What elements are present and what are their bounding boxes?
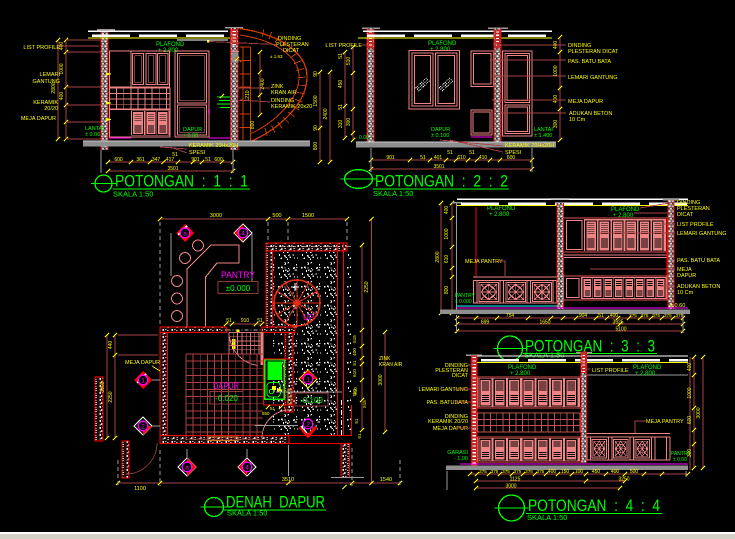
svg-text:400: 400 bbox=[59, 92, 65, 101]
svg-text:PAS. BATU BATA: PAS. BATU BATA bbox=[677, 258, 720, 264]
svg-text:2400: 2400 bbox=[260, 78, 266, 89]
svg-text:LIST PROFILE: LIST PROFILE bbox=[677, 222, 714, 228]
svg-text:375: 375 bbox=[629, 313, 637, 318]
svg-text:800: 800 bbox=[313, 142, 319, 151]
svg-text:51: 51 bbox=[205, 157, 211, 163]
svg-text:PANTRY: PANTRY bbox=[221, 270, 256, 281]
svg-text:375: 375 bbox=[664, 313, 672, 318]
svg-text:2250: 2250 bbox=[108, 391, 114, 402]
svg-text:MEJA DAPUR: MEJA DAPUR bbox=[568, 99, 603, 105]
svg-text:3000: 3000 bbox=[505, 484, 516, 490]
svg-text:PAS. BATUBATA: PAS. BATUBATA bbox=[427, 400, 469, 406]
svg-text:1000: 1000 bbox=[553, 65, 559, 76]
svg-text:KERAMIK 20Hx20H: KERAMIK 20Hx20H bbox=[189, 143, 238, 149]
svg-text:2: 2 bbox=[141, 424, 145, 431]
svg-text:2250: 2250 bbox=[364, 281, 370, 292]
svg-text:361: 361 bbox=[136, 157, 145, 163]
svg-text:375: 375 bbox=[537, 469, 545, 474]
svg-text:450: 450 bbox=[592, 469, 601, 475]
svg-text:± 0.00: ± 0.00 bbox=[183, 133, 198, 139]
svg-text:±0.000: ±0.000 bbox=[226, 284, 251, 293]
svg-text:POTONGAN : 1 : 1: POTONGAN : 1 : 1 bbox=[115, 173, 248, 191]
svg-text:510: 510 bbox=[346, 57, 352, 66]
svg-text:KRAN AIR: KRAN AIR bbox=[271, 90, 297, 96]
svg-text:375: 375 bbox=[514, 469, 522, 474]
svg-text:5100: 5100 bbox=[615, 327, 626, 333]
svg-text:3510: 3510 bbox=[282, 477, 294, 483]
svg-text:± 0.100: ± 0.100 bbox=[431, 133, 449, 139]
svg-text:3925: 3925 bbox=[612, 320, 623, 326]
svg-text:a: a bbox=[185, 465, 189, 472]
svg-text:MEJA DAPUR: MEJA DAPUR bbox=[433, 426, 468, 432]
svg-text:DAPUR: DAPUR bbox=[677, 273, 696, 279]
svg-text:3000: 3000 bbox=[100, 381, 106, 392]
svg-text:515: 515 bbox=[352, 335, 357, 343]
svg-text:51: 51 bbox=[338, 104, 344, 110]
svg-text:LEMARI GANTUNG: LEMARI GANTUNG bbox=[568, 75, 618, 81]
svg-text:150: 150 bbox=[561, 469, 570, 475]
svg-text:400: 400 bbox=[687, 363, 693, 372]
svg-text:POTONGAN : 2 : 2: POTONGAN : 2 : 2 bbox=[375, 173, 508, 191]
svg-text:600: 600 bbox=[507, 155, 516, 161]
svg-text:3250: 3250 bbox=[618, 477, 629, 483]
svg-text:2400: 2400 bbox=[323, 108, 329, 119]
svg-text:699: 699 bbox=[481, 320, 490, 326]
svg-text:51: 51 bbox=[598, 313, 604, 319]
svg-text:SKALA 1:50: SKALA 1:50 bbox=[373, 189, 413, 198]
svg-text:LEMARI: LEMARI bbox=[40, 72, 61, 78]
svg-text:SKALA 1:50: SKALA 1:50 bbox=[527, 513, 567, 522]
svg-text:1650: 1650 bbox=[539, 320, 550, 326]
svg-text:400: 400 bbox=[610, 313, 619, 319]
svg-text:51: 51 bbox=[270, 406, 276, 411]
svg-text:600: 600 bbox=[214, 157, 223, 163]
svg-text:2800: 2800 bbox=[435, 251, 441, 262]
svg-text:51: 51 bbox=[447, 150, 453, 156]
svg-text:51: 51 bbox=[172, 152, 178, 158]
svg-text:800: 800 bbox=[250, 121, 256, 130]
svg-text:90: 90 bbox=[313, 125, 319, 131]
svg-text:DAPUR: DAPUR bbox=[213, 381, 239, 391]
svg-text:3501: 3501 bbox=[433, 164, 444, 170]
svg-text:3000: 3000 bbox=[210, 213, 222, 219]
svg-text:904: 904 bbox=[579, 313, 588, 319]
svg-text:300: 300 bbox=[346, 118, 352, 127]
svg-text:3000: 3000 bbox=[696, 407, 702, 418]
svg-text:450: 450 bbox=[338, 80, 344, 89]
svg-text:LIST PROFILE: LIST PROFILE bbox=[592, 368, 629, 374]
svg-text:LIST PROFILE: LIST PROFILE bbox=[325, 43, 362, 49]
svg-text:600: 600 bbox=[687, 416, 693, 425]
svg-text:401: 401 bbox=[434, 155, 443, 161]
svg-text:3501: 3501 bbox=[167, 166, 178, 172]
svg-text:2: 2 bbox=[306, 422, 310, 429]
svg-text:400: 400 bbox=[553, 95, 559, 104]
svg-text:1500: 1500 bbox=[302, 213, 314, 219]
svg-text:754: 754 bbox=[506, 313, 515, 319]
svg-text:375: 375 bbox=[652, 313, 660, 318]
svg-text:375: 375 bbox=[676, 313, 684, 318]
svg-text:51: 51 bbox=[357, 433, 362, 439]
svg-text:901: 901 bbox=[386, 155, 395, 161]
svg-text:1: 1 bbox=[306, 377, 310, 384]
svg-text:51: 51 bbox=[338, 53, 344, 59]
svg-text:PLESTERAN DICAT: PLESTERAN DICAT bbox=[568, 49, 619, 55]
svg-text:UP: UP bbox=[303, 313, 314, 322]
svg-text:LEMARI GANTUNG: LEMARI GANTUNG bbox=[418, 387, 468, 393]
svg-text:800: 800 bbox=[444, 286, 450, 295]
svg-text:1125: 1125 bbox=[510, 477, 521, 483]
svg-text:KERAMIK 20/20: KERAMIK 20/20 bbox=[428, 419, 468, 425]
svg-text:LEMARI GANTUNG: LEMARI GANTUNG bbox=[677, 231, 727, 237]
svg-text:- 0.00: - 0.00 bbox=[356, 135, 369, 141]
svg-text:610: 610 bbox=[457, 155, 466, 161]
svg-text:610: 610 bbox=[444, 255, 450, 264]
svg-text:+ 2.800: + 2.800 bbox=[635, 371, 656, 377]
svg-text:51: 51 bbox=[257, 318, 263, 324]
svg-text:SKALA 1:50: SKALA 1:50 bbox=[113, 190, 153, 199]
svg-text:500: 500 bbox=[272, 213, 281, 219]
svg-text:3000: 3000 bbox=[378, 374, 384, 385]
svg-text:100: 100 bbox=[575, 469, 584, 475]
svg-text:300: 300 bbox=[687, 449, 693, 458]
svg-text:± 0.00: ± 0.00 bbox=[673, 457, 687, 463]
svg-text:± 1.400: ± 1.400 bbox=[534, 133, 552, 139]
svg-text:400: 400 bbox=[548, 469, 557, 475]
svg-text:51: 51 bbox=[352, 360, 357, 366]
svg-text:1210: 1210 bbox=[245, 90, 251, 101]
svg-text:375: 375 bbox=[502, 469, 510, 474]
svg-text:310: 310 bbox=[338, 120, 344, 129]
svg-text:SKALA 1:50: SKALA 1:50 bbox=[524, 351, 564, 360]
svg-text:410: 410 bbox=[479, 155, 488, 161]
svg-text:20/20: 20/20 bbox=[44, 106, 58, 112]
svg-text:+ 2.800: + 2.800 bbox=[510, 371, 531, 377]
svg-text:375: 375 bbox=[525, 469, 533, 474]
svg-text:10 Cm: 10 Cm bbox=[569, 117, 586, 123]
svg-text:610: 610 bbox=[353, 387, 358, 395]
svg-text:515: 515 bbox=[362, 400, 367, 408]
svg-text:DICAT: DICAT bbox=[283, 48, 300, 54]
svg-text:300: 300 bbox=[553, 120, 559, 129]
svg-text:MEJA PANTRY: MEJA PANTRY bbox=[465, 259, 503, 265]
svg-text:DICAT: DICAT bbox=[452, 373, 469, 379]
svg-text:PAS. BATU BATA: PAS. BATU BATA bbox=[568, 59, 611, 65]
svg-text:KRAN AIR: KRAN AIR bbox=[379, 362, 403, 368]
svg-text:GANTUNG: GANTUNG bbox=[33, 79, 61, 85]
svg-text:901: 901 bbox=[191, 157, 200, 163]
svg-text:a: a bbox=[183, 231, 187, 238]
svg-text:± 1.63: ± 1.63 bbox=[270, 54, 283, 59]
svg-text:51: 51 bbox=[469, 150, 475, 156]
svg-text:51: 51 bbox=[420, 155, 426, 161]
svg-text:375: 375 bbox=[479, 469, 487, 474]
svg-text:650: 650 bbox=[262, 411, 270, 416]
svg-text:1000: 1000 bbox=[444, 228, 450, 239]
svg-text:4: 4 bbox=[241, 231, 245, 238]
svg-text:910: 910 bbox=[241, 318, 250, 324]
svg-text:1000: 1000 bbox=[687, 387, 693, 398]
svg-text:51: 51 bbox=[354, 418, 359, 424]
svg-text:10 Cm: 10 Cm bbox=[677, 290, 694, 296]
svg-text:-0.020: -0.020 bbox=[215, 394, 238, 403]
svg-text:LIST PROFILE: LIST PROFILE bbox=[23, 45, 60, 51]
svg-text:600: 600 bbox=[114, 157, 123, 163]
svg-text:SPESI: SPESI bbox=[189, 150, 206, 156]
svg-text:400: 400 bbox=[444, 206, 450, 215]
svg-text:KERAMIK 20x20: KERAMIK 20x20 bbox=[271, 104, 312, 110]
svg-text:347: 347 bbox=[152, 157, 161, 163]
svg-text:MEJA PANTRY: MEJA PANTRY bbox=[646, 419, 684, 425]
svg-text:DICAT: DICAT bbox=[677, 212, 694, 218]
svg-text:440: 440 bbox=[108, 341, 114, 350]
svg-text:1100: 1100 bbox=[134, 486, 146, 492]
svg-text:375: 375 bbox=[641, 313, 649, 318]
svg-text:+ 2.800: + 2.800 bbox=[489, 212, 510, 218]
svg-text:1500: 1500 bbox=[313, 95, 319, 106]
svg-text:500: 500 bbox=[630, 469, 639, 475]
svg-text:1: 1 bbox=[141, 378, 145, 385]
svg-text:610: 610 bbox=[352, 369, 357, 377]
svg-text:± 0.000: ± 0.000 bbox=[455, 299, 472, 305]
svg-text:-0.100: -0.100 bbox=[300, 396, 323, 405]
svg-text:MEJA DAPUR: MEJA DAPUR bbox=[125, 360, 160, 366]
svg-text:- 1.00: - 1.00 bbox=[454, 456, 468, 462]
svg-text:400: 400 bbox=[352, 348, 357, 356]
svg-text:375: 375 bbox=[491, 469, 499, 474]
svg-text:1540: 1540 bbox=[380, 477, 392, 483]
svg-text:4: 4 bbox=[245, 465, 249, 472]
svg-text:MEJA DAPUR: MEJA DAPUR bbox=[21, 116, 56, 122]
svg-text:KERAMIK 20Hx20H: KERAMIK 20Hx20H bbox=[505, 143, 554, 149]
svg-text:400: 400 bbox=[611, 469, 620, 475]
svg-text:90: 90 bbox=[313, 71, 319, 77]
svg-text:SKALA 1:50: SKALA 1:50 bbox=[227, 509, 267, 518]
svg-text:± 0.00: ± 0.00 bbox=[85, 132, 100, 138]
